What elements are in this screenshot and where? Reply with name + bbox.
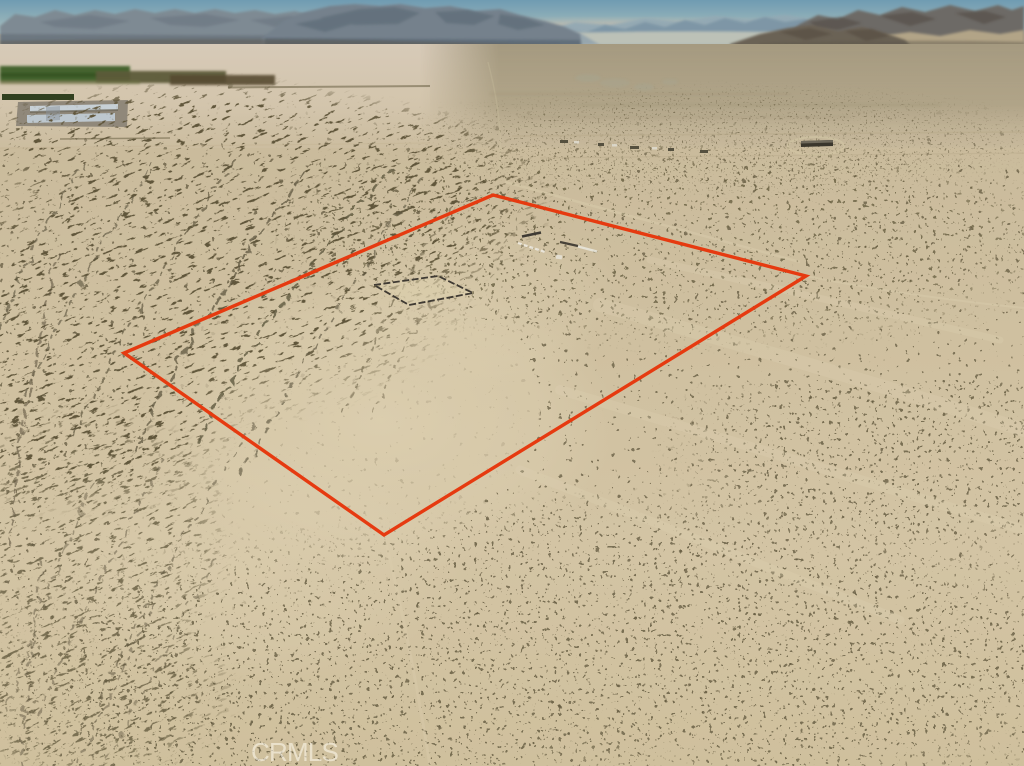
svg-text:CRMLS: CRMLS — [251, 737, 338, 766]
